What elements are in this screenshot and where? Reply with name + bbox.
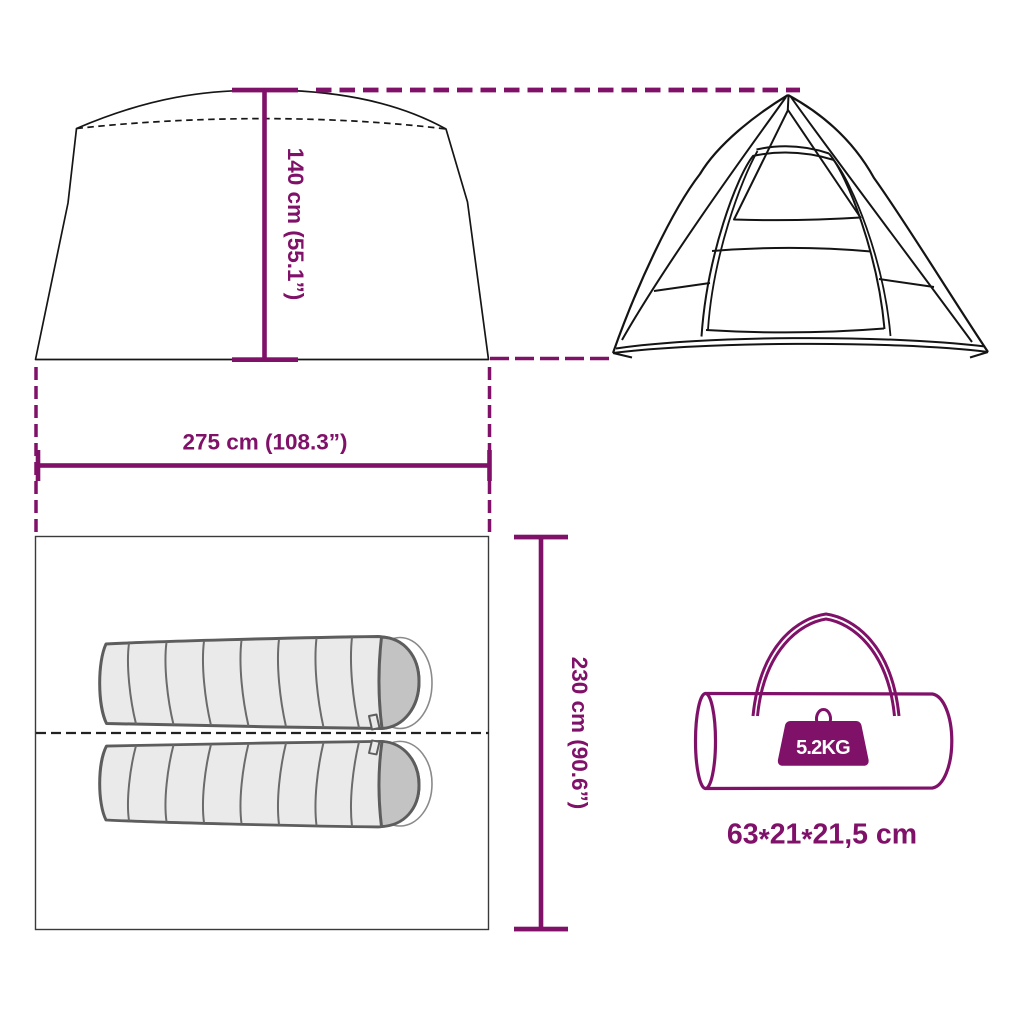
svg-text:140 cm (55.1”): 140 cm (55.1”) xyxy=(283,148,308,301)
svg-text:230 cm (90.6”): 230 cm (90.6”) xyxy=(567,657,592,810)
svg-text:5.2KG: 5.2KG xyxy=(796,737,850,759)
svg-text:63*21*21,5 cm: 63*21*21,5 cm xyxy=(727,819,917,857)
svg-text:275 cm (108.3”): 275 cm (108.3”) xyxy=(182,430,347,455)
